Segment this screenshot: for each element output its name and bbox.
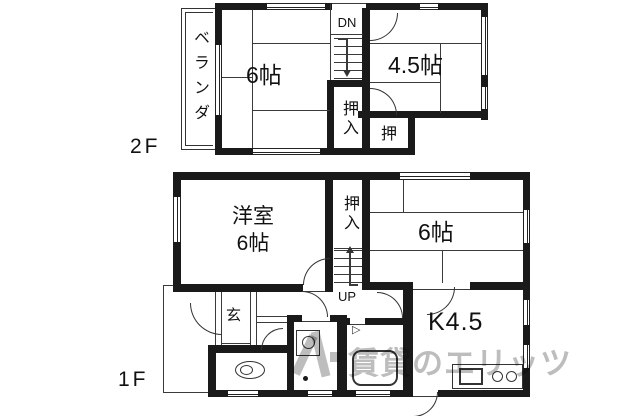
stair-arrow-head — [346, 246, 354, 253]
stairs-up-label: UP — [332, 288, 362, 304]
wall — [215, 148, 253, 155]
wall — [258, 390, 308, 397]
door-arc — [303, 258, 330, 285]
western-room-label: 洋室 6帖 — [200, 203, 306, 257]
room-6jo-2f-label: 6帖 — [246, 56, 282, 90]
door-arc — [377, 292, 403, 318]
door-arc — [302, 291, 328, 317]
wall — [215, 3, 267, 10]
tatami-line — [442, 250, 443, 283]
wall — [470, 172, 530, 180]
tatami-line — [403, 180, 404, 212]
wall — [330, 315, 337, 322]
tatami-line — [370, 43, 481, 44]
wall — [365, 318, 403, 325]
wall — [481, 75, 488, 87]
stair-line — [330, 34, 363, 35]
tatami-line — [370, 250, 523, 251]
window — [523, 300, 530, 325]
hall-line — [257, 316, 287, 317]
stairs-down-label: DN — [332, 14, 362, 30]
genkan-wall-line — [250, 292, 251, 350]
wall — [362, 180, 370, 283]
hall-line — [257, 322, 287, 323]
watermark-text: 賃貸のエリッツ — [348, 338, 572, 383]
tatami-line — [252, 110, 330, 111]
window — [356, 390, 390, 397]
floor-label-2f: 2F — [130, 135, 161, 159]
window — [420, 3, 438, 10]
drain-dot — [303, 376, 308, 381]
window — [400, 172, 470, 180]
window — [215, 45, 222, 115]
wall — [370, 172, 400, 180]
floor-plan: 2F ベランダ DN 6帖 4.5帖 押入 押 1F — [0, 0, 640, 416]
window — [481, 87, 488, 109]
bath-door-marker: ▷ — [352, 323, 360, 336]
stairs-1f — [334, 250, 362, 288]
genkan-label: 玄 — [226, 304, 241, 325]
wall — [173, 284, 303, 292]
wall — [438, 390, 530, 397]
door-arc — [370, 88, 397, 115]
western-room-label-line1: 洋室 — [200, 203, 306, 230]
wall — [366, 3, 420, 10]
stair-arrow-head — [343, 70, 351, 77]
window — [267, 3, 325, 10]
window — [308, 390, 332, 397]
window — [228, 390, 258, 397]
wall — [293, 315, 302, 322]
wall — [523, 172, 530, 210]
window — [173, 197, 181, 242]
wall-thin — [332, 3, 366, 4]
tatami-line — [370, 82, 440, 83]
door-arc — [413, 392, 438, 416]
western-room-label-line2: 6帖 — [200, 230, 306, 257]
veranda-label: ベランダ — [188, 16, 210, 142]
wall — [470, 282, 530, 290]
tatami-line — [252, 43, 330, 44]
wall — [327, 87, 334, 148]
stair-arrow-line — [346, 38, 348, 72]
porch-line — [163, 285, 164, 393]
wall — [523, 243, 530, 300]
oshiire-2f-label: 押入 — [335, 92, 361, 146]
door-arc — [261, 328, 283, 350]
room-6jo-1f-label: 6帖 — [418, 213, 454, 247]
wall — [173, 172, 370, 180]
window — [253, 148, 320, 155]
toilet-fixture-inner — [240, 365, 253, 375]
oshi-closet-label: 押 — [370, 116, 408, 148]
room-45jo-label: 4.5帖 — [388, 46, 443, 80]
window — [481, 17, 488, 75]
wall — [208, 345, 216, 392]
wall — [362, 8, 370, 155]
wall — [287, 315, 294, 392]
window — [523, 210, 530, 243]
oshiire-1f-label: 押入 — [336, 184, 362, 244]
genkan-wall-line — [256, 292, 257, 350]
stair-arrow-hook — [338, 38, 347, 40]
wall — [481, 3, 488, 17]
stair-arrow-hook — [349, 284, 358, 286]
kitchen-label: K4.5 — [428, 308, 483, 337]
watermark-logo — [330, 352, 340, 362]
door-arc — [190, 303, 222, 335]
genkan-step-line — [222, 343, 250, 344]
wall — [173, 172, 181, 197]
floor-label-1f: 1F — [118, 368, 149, 392]
door-arc — [370, 13, 398, 41]
stair-arrow-line — [349, 252, 351, 286]
door-threshold — [302, 321, 330, 322]
room-divider — [330, 4, 331, 80]
